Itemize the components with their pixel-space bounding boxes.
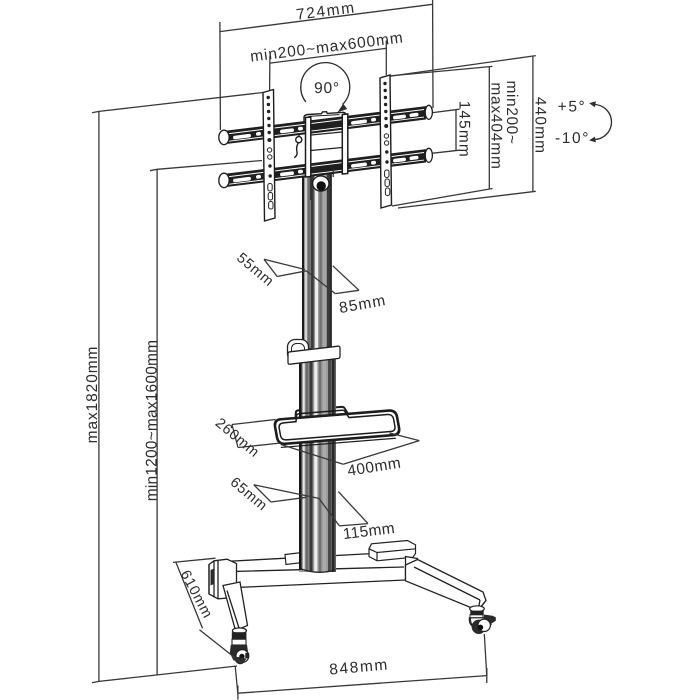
svg-text:90°: 90° — [314, 80, 340, 97]
svg-text:min1200~max1600mm: min1200~max1600mm — [143, 340, 160, 502]
svg-text:max404mm: max404mm — [487, 82, 504, 169]
svg-text:-10°: -10° — [555, 130, 590, 147]
svg-text:max1820mm: max1820mm — [84, 346, 101, 444]
svg-text:440mm: 440mm — [531, 97, 548, 154]
svg-text:145mm: 145mm — [455, 101, 472, 158]
svg-text:min200~: min200~ — [503, 80, 520, 144]
svg-text:+5°: +5° — [558, 98, 587, 115]
